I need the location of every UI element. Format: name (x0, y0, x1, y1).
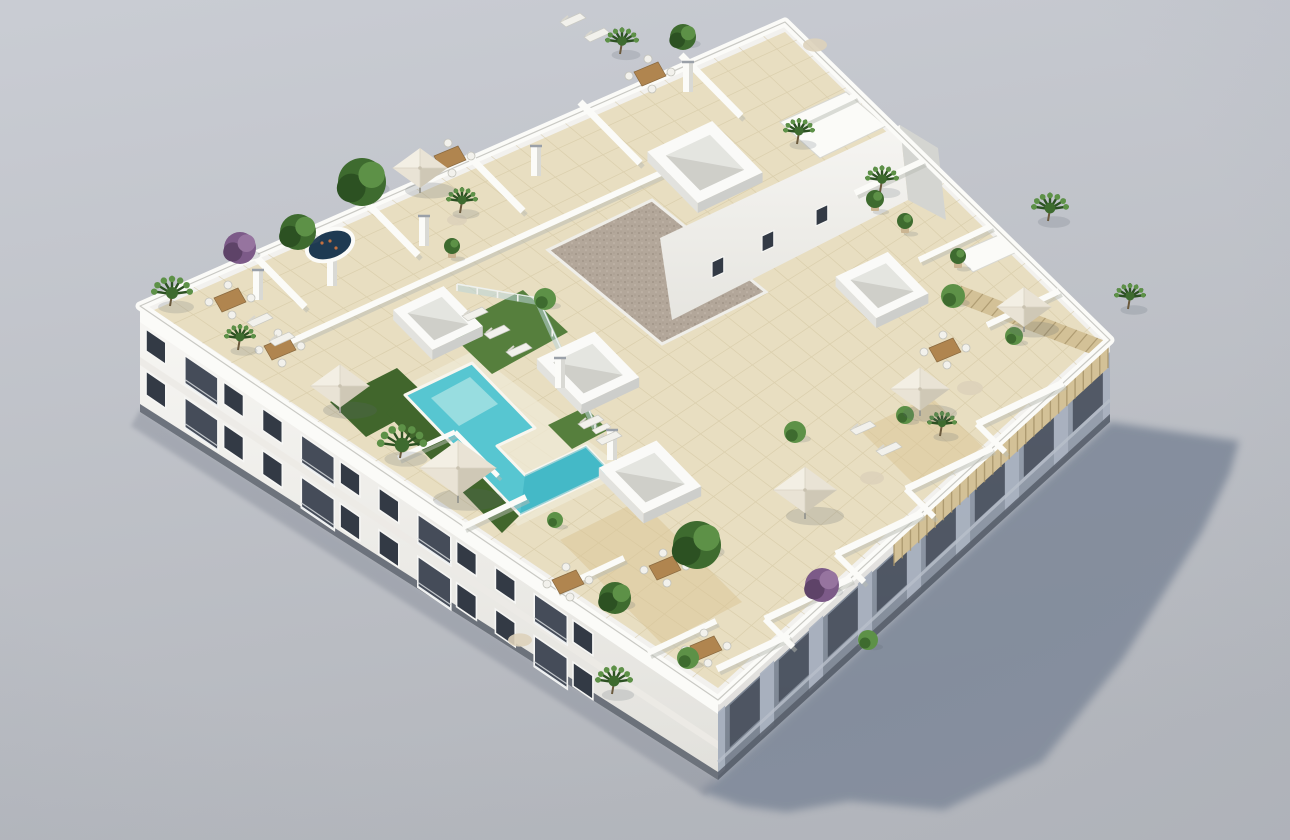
render-stage (0, 0, 1290, 840)
aerial-building-render (0, 0, 1290, 840)
